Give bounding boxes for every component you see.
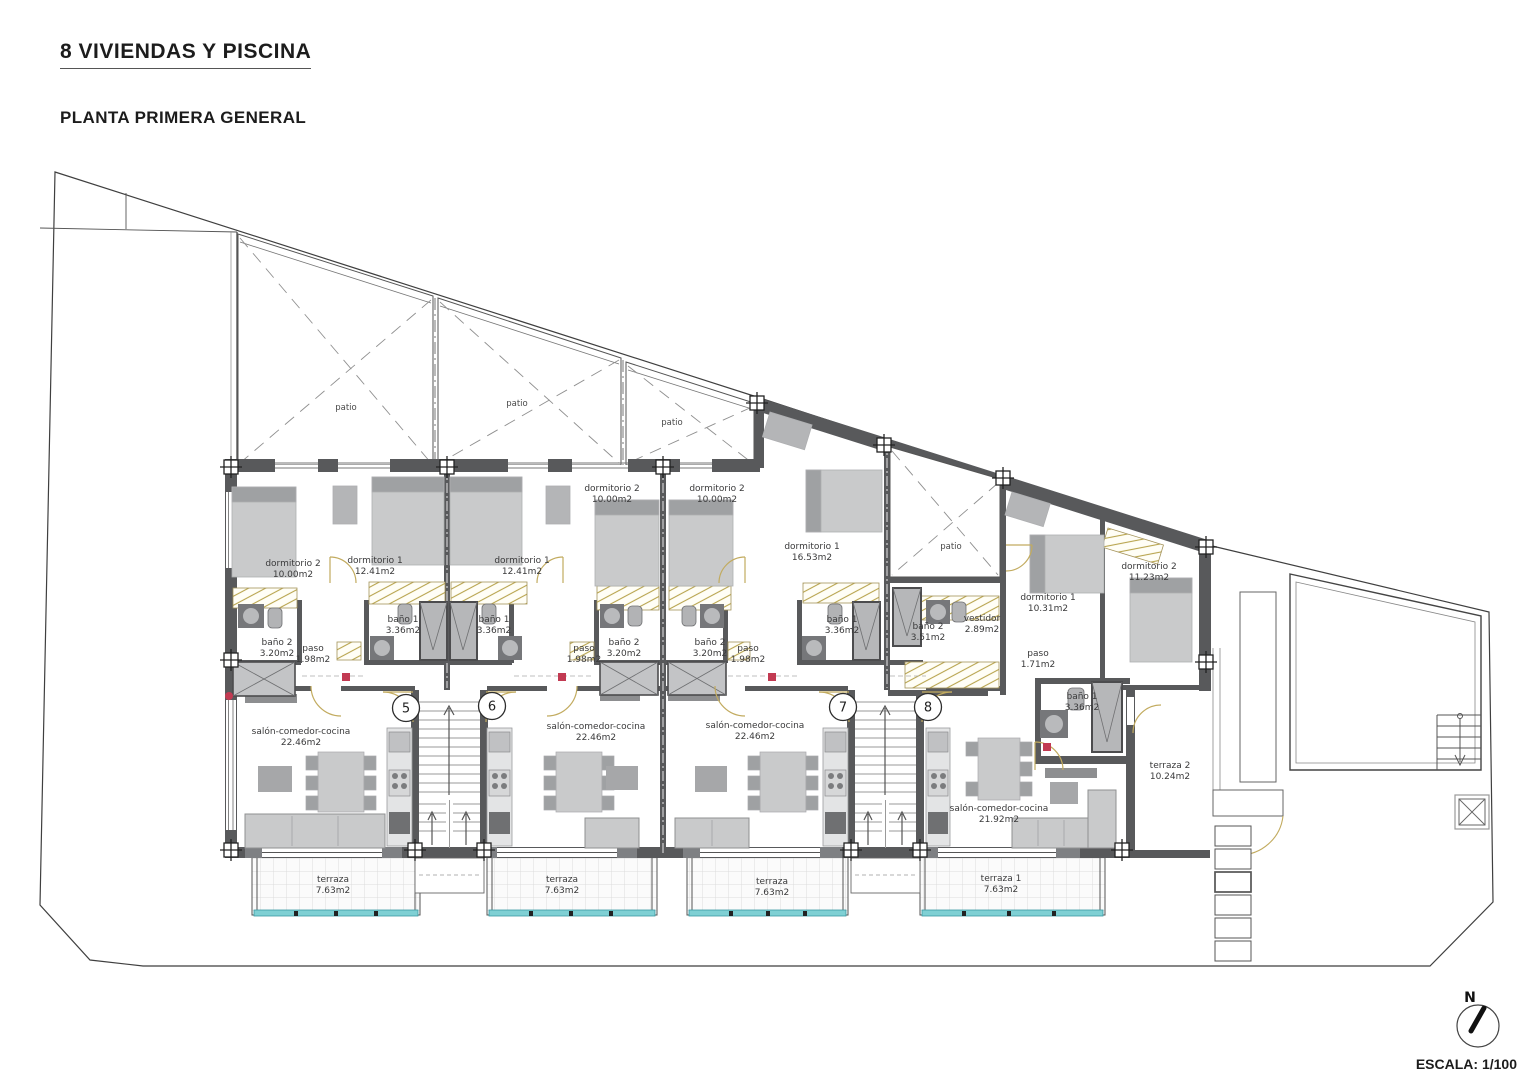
room-label: dormitorio 210.00m2: [265, 559, 320, 580]
room-label: terraza7.63m2: [316, 875, 351, 896]
room-label: dormitorio 110.31m2: [1020, 593, 1075, 614]
patio-unit78: [890, 447, 1000, 577]
room-label: terraza 210.24m2: [1150, 761, 1191, 782]
compass-north-label: N: [1464, 990, 1476, 1006]
room-label: baño 23.20m2: [693, 638, 728, 659]
planter: [1240, 592, 1276, 782]
room-label: dormitorio 210.00m2: [584, 484, 639, 505]
patio-label: patio: [661, 418, 683, 428]
floor-plan-page: 8 VIVIENDAS Y PISCINA PLANTA PRIMERA GEN…: [0, 0, 1527, 1080]
page-subtitle: PLANTA PRIMERA GENERAL: [60, 108, 306, 128]
room-label: baño 23.51m2: [911, 622, 946, 643]
floor-plan-drawing: patiopatiopatiopatio dormitorio 210.00m2…: [0, 0, 1527, 1080]
compass-icon: N: [1457, 990, 1499, 1047]
patio-label: patio: [940, 542, 962, 552]
room-label: baño 23.20m2: [260, 638, 295, 659]
unit-number-badge: 8: [915, 694, 942, 721]
room-label: dormitorio 211.23m2: [1121, 562, 1176, 583]
unit-number: 5: [402, 702, 410, 717]
room-label: baño 13.36m2: [1065, 692, 1100, 713]
skylight-icon: [1455, 795, 1489, 829]
room-label: baño 23.20m2: [607, 638, 642, 659]
room-label: dormitorio 210.00m2: [689, 484, 744, 505]
room-label: dormitorio 112.41m2: [347, 556, 402, 577]
stair-core-1: [411, 690, 488, 893]
room-label: terraza7.63m2: [545, 875, 580, 896]
unit-number: 6: [488, 700, 496, 715]
unit-number: 7: [839, 701, 847, 716]
patio-label: patio: [506, 399, 528, 409]
pool-landing: [1213, 790, 1283, 816]
unit-number-badge: 7: [830, 694, 857, 721]
patio-label: patio: [335, 403, 357, 413]
unit-number-badge: 5: [393, 695, 420, 722]
room-label: dormitorio 116.53m2: [784, 542, 839, 563]
room-label: baño 13.36m2: [386, 615, 421, 636]
unit-number-badge: 6: [479, 693, 506, 720]
room-label: dormitorio 112.41m2: [494, 556, 549, 577]
room-label: vestidor2.89m2: [964, 614, 1001, 635]
page-title: 8 VIVIENDAS Y PISCINA: [60, 40, 311, 69]
scale-label: ESCALA: 1/100: [1330, 1056, 1517, 1072]
unit-number: 8: [924, 701, 932, 716]
room-label: baño 13.36m2: [825, 615, 860, 636]
room-label: terraza 17.63m2: [981, 874, 1022, 895]
room-label: terraza7.63m2: [755, 877, 790, 898]
room-label: baño 13.36m2: [477, 615, 512, 636]
patio-areas: [231, 232, 754, 465]
stair-core-2: [847, 690, 924, 893]
